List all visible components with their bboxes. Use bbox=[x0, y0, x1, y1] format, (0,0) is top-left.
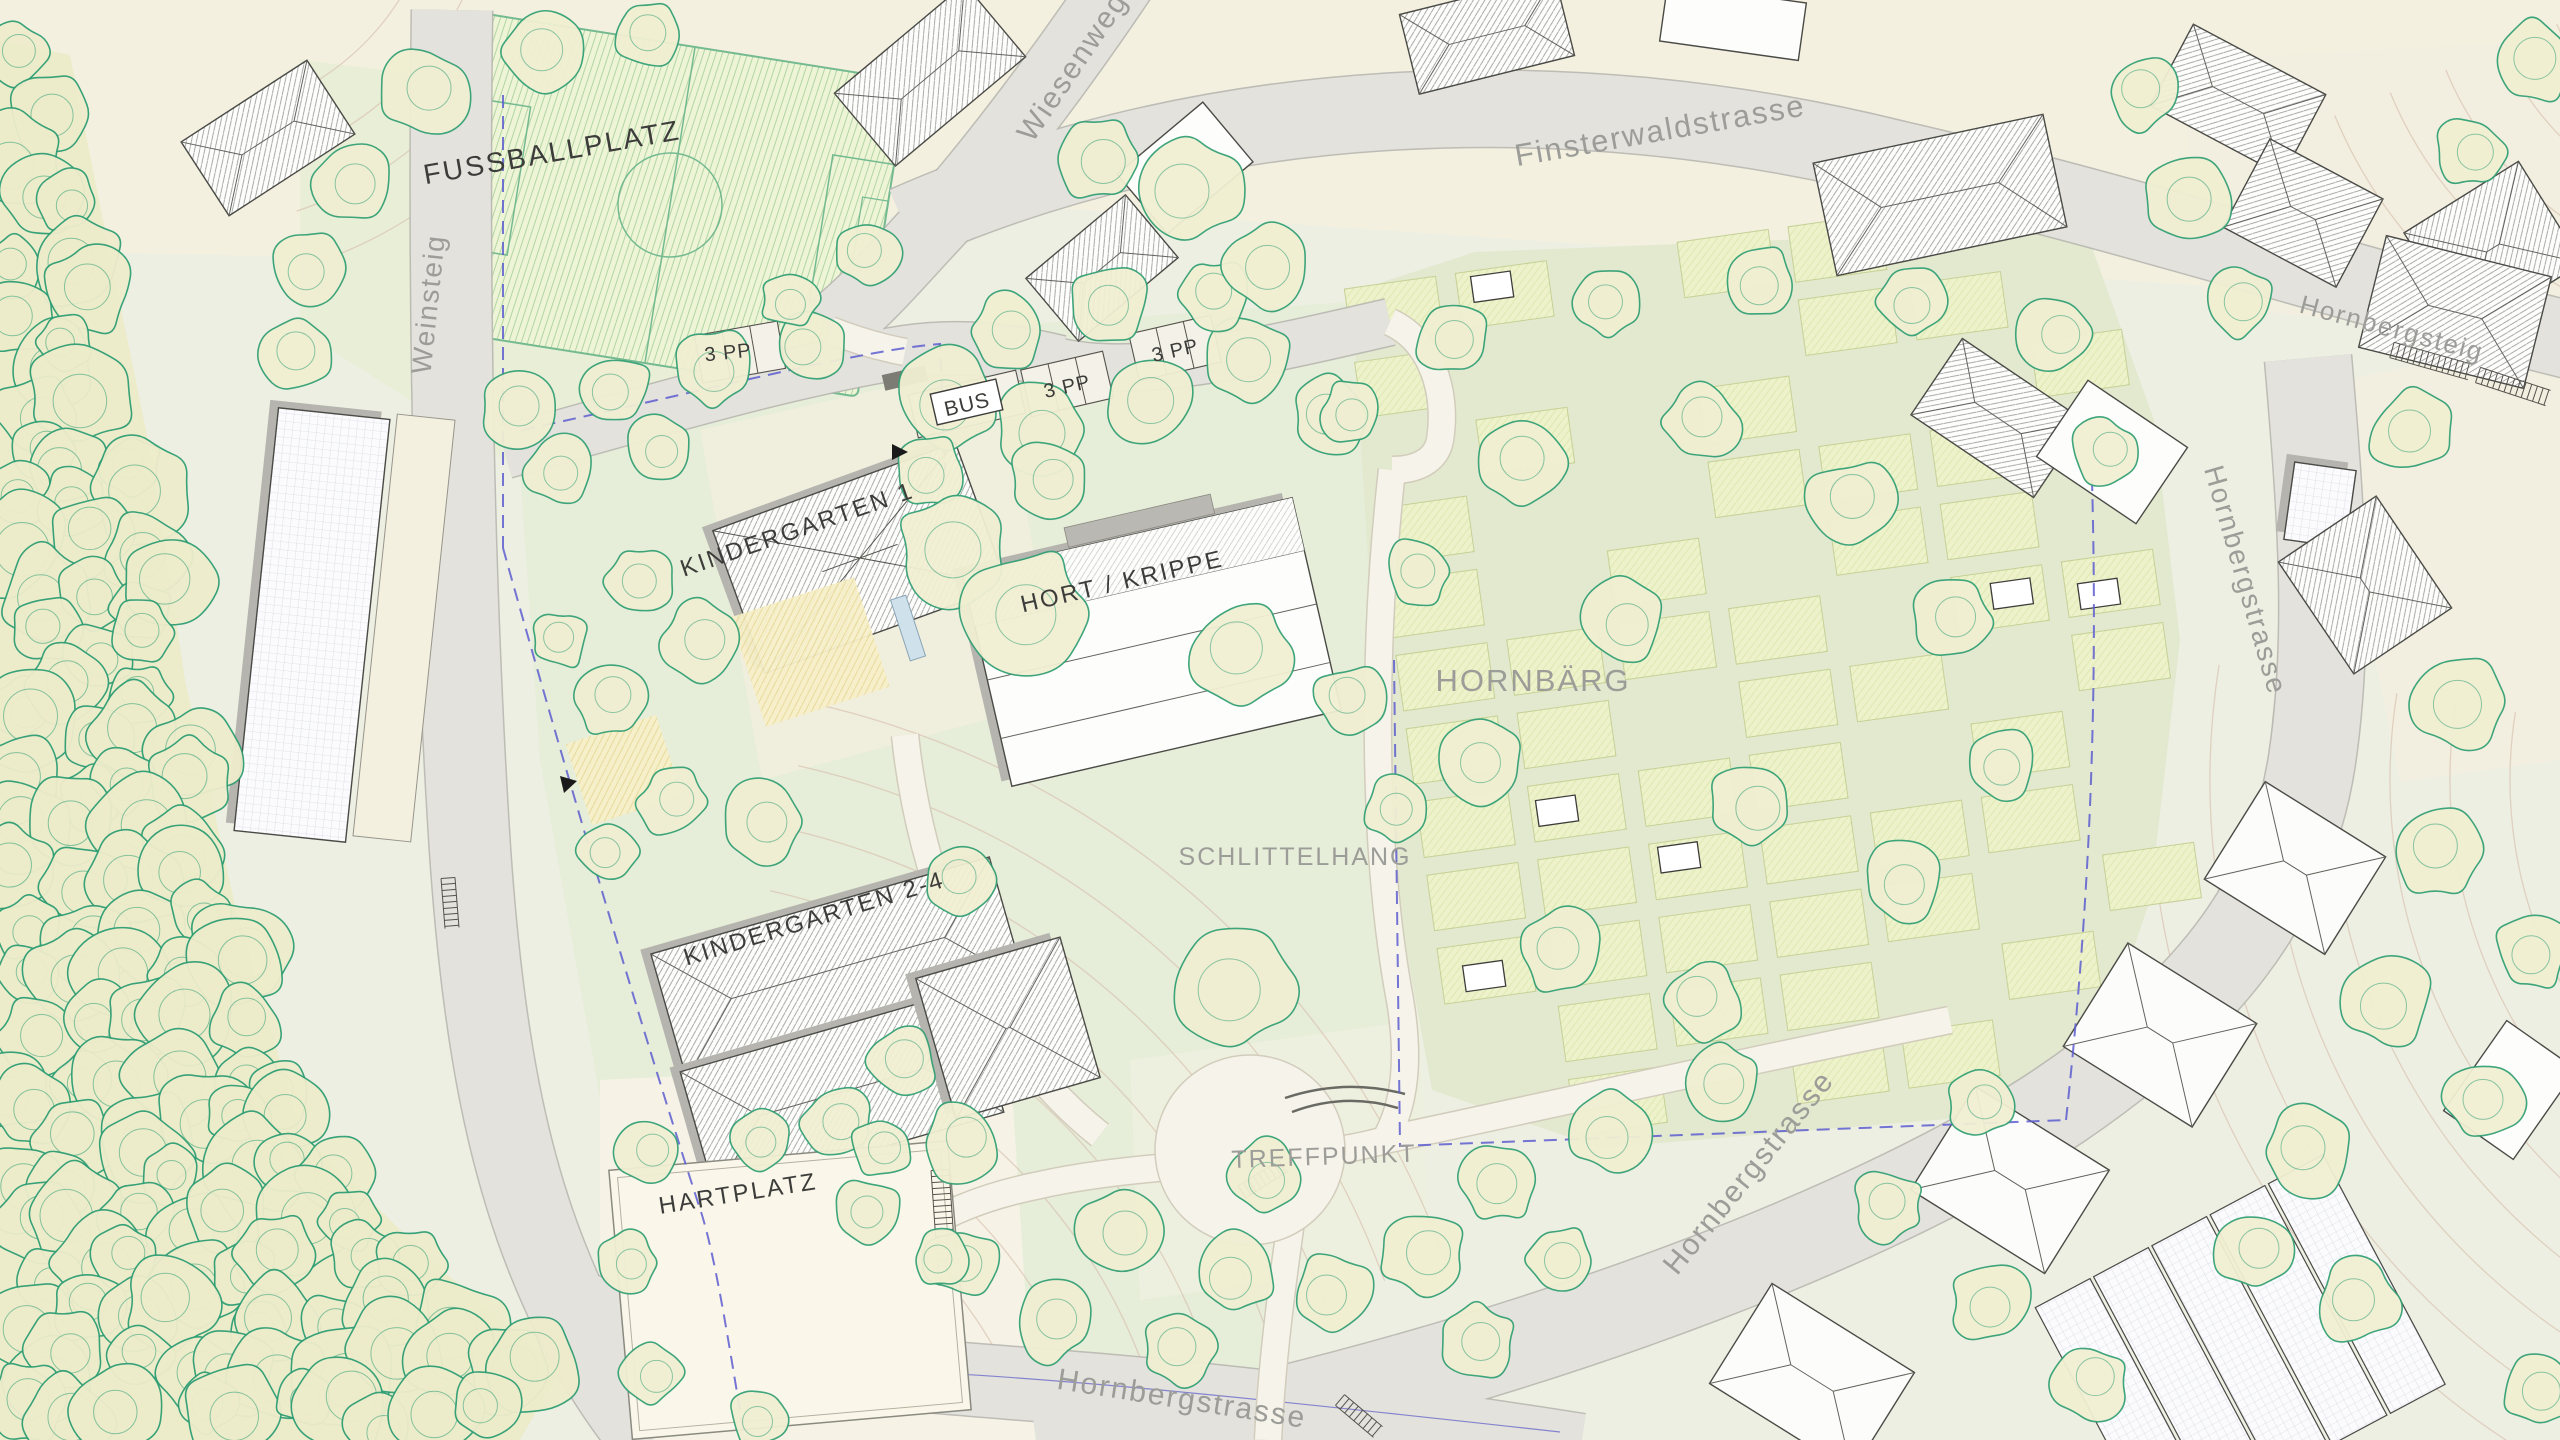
label-hornbaerg: HORNBÄRG bbox=[1435, 663, 1630, 698]
label-schlittelhang: SCHLITTELHANG bbox=[1179, 843, 1412, 871]
site-plan-page: FUSSBALLPLATZWiesenwegFinsterwaldstrasse… bbox=[0, 0, 2560, 1440]
site-plan-map: FUSSBALLPLATZWiesenwegFinsterwaldstrasse… bbox=[0, 0, 2560, 1440]
